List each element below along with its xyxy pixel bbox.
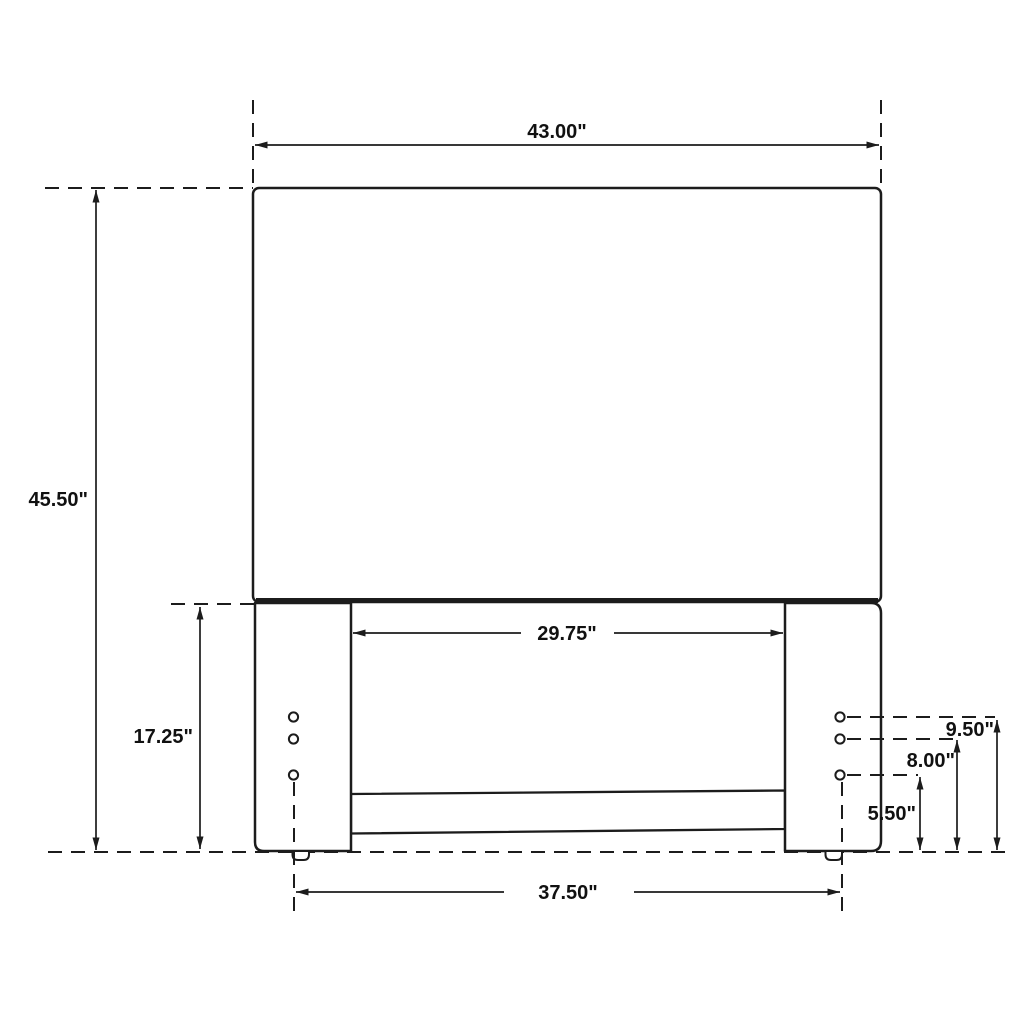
dim-label-overall-width: 43.00" <box>527 121 587 143</box>
right-leg-foot <box>826 851 843 860</box>
dim-label-hole-top-height: 9.50" <box>946 719 994 741</box>
dim-label-between-feet: 37.50" <box>538 882 598 904</box>
left-leg-hole-top <box>289 712 298 721</box>
right-leg-hole-bottom <box>835 770 844 779</box>
drawing-page: 43.00" 45.50" 17.25" 29.75" 37.50" 9.50"… <box>0 0 1024 1024</box>
headboard-panel <box>253 188 881 602</box>
dim-label-hole-middle-height: 8.00" <box>907 750 955 772</box>
drawing-canvas: 43.00" 45.50" 17.25" 29.75" 37.50" 9.50"… <box>0 0 1024 1024</box>
right-leg-hole-middle <box>835 734 844 743</box>
dim-label-overall-height: 45.50" <box>28 489 88 511</box>
cross-rail <box>351 791 785 834</box>
dim-label-between-legs: 29.75" <box>537 623 597 645</box>
right-leg-hole-top <box>835 712 844 721</box>
left-leg <box>255 603 351 851</box>
left-leg-hole-bottom <box>289 770 298 779</box>
left-leg-hole-middle <box>289 734 298 743</box>
dim-label-hole-bottom-height: 5.50" <box>868 803 916 825</box>
dim-label-leg-height: 17.25" <box>133 726 193 748</box>
